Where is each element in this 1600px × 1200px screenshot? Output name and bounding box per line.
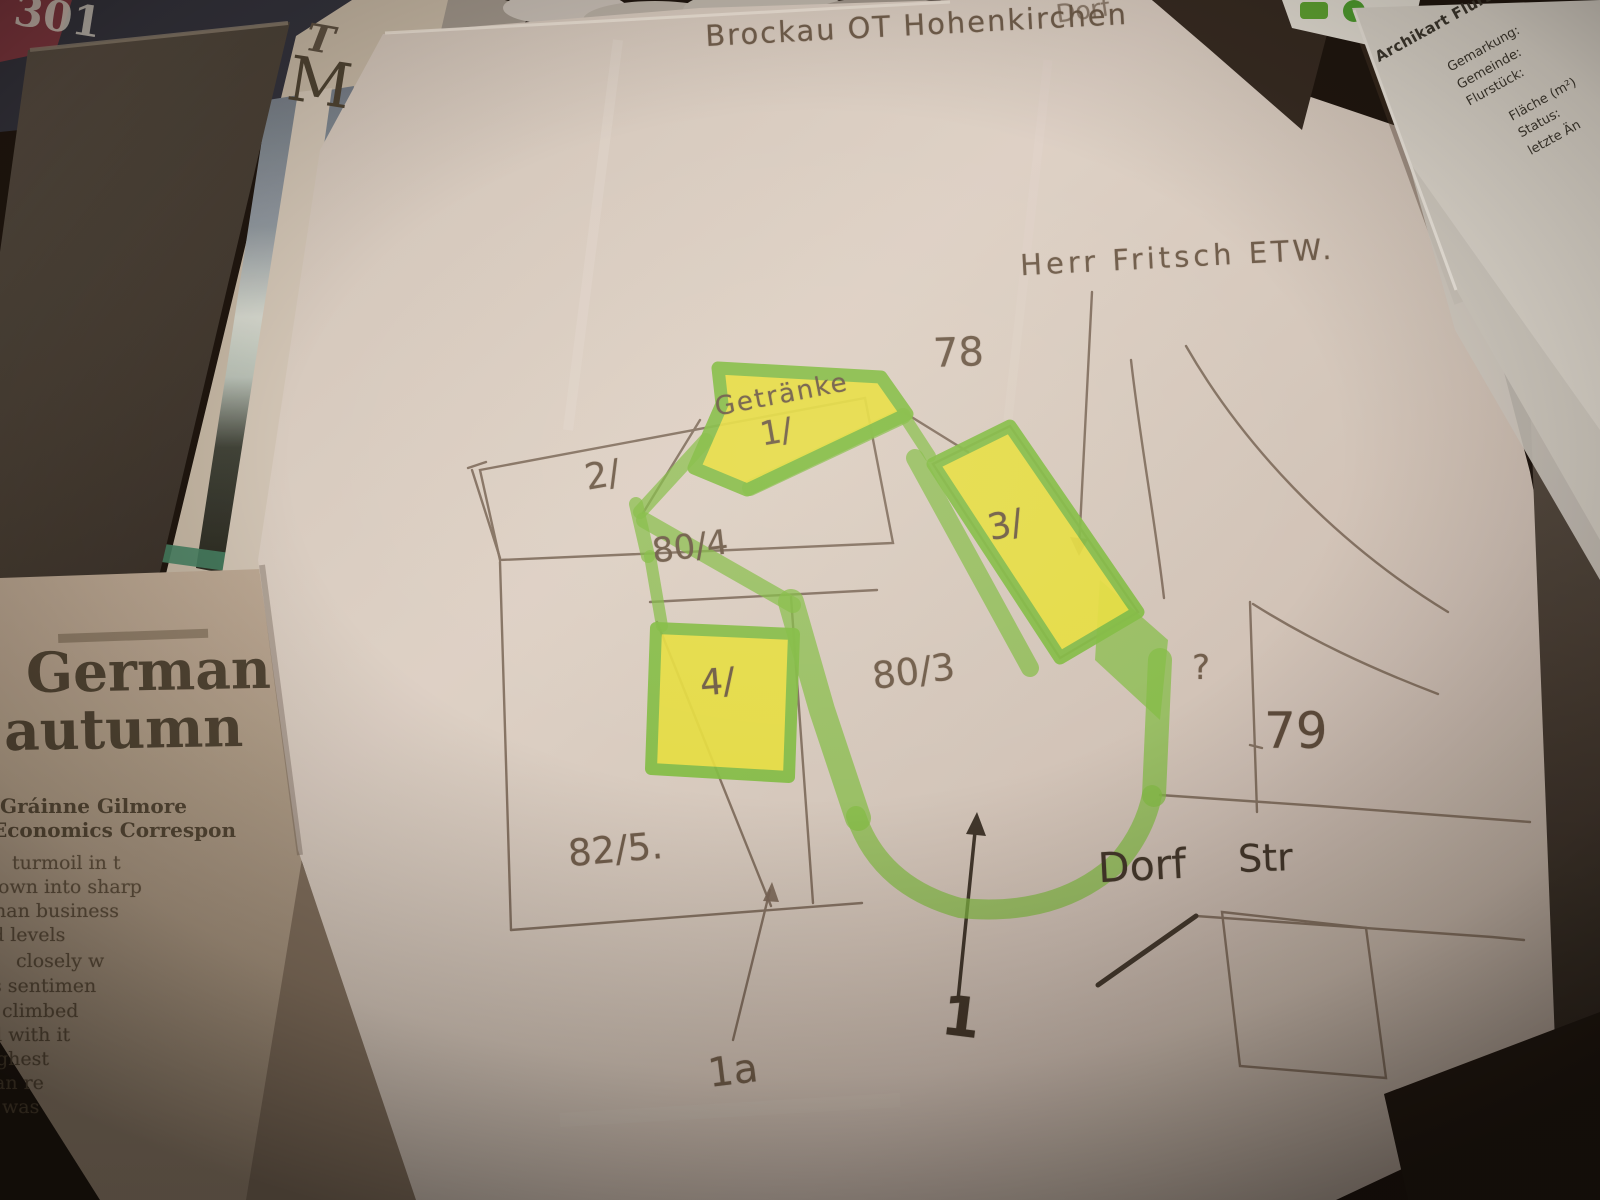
byline: Gráinne Gilmore — [0, 794, 187, 818]
newspaper-headline-initial: M — [283, 41, 357, 123]
body-line: was — [2, 1096, 39, 1118]
building-4-label: 4/ — [698, 661, 736, 705]
body-line: s sentimen — [0, 975, 96, 997]
callout-1: 1 — [938, 983, 984, 1051]
body-line: climbed — [2, 1000, 78, 1022]
body-line: own into sharp — [0, 876, 142, 898]
body-line: d with it — [0, 1024, 70, 1046]
scene-artwork — [0, 0, 1600, 1200]
headline-line-2: autumn — [3, 694, 243, 763]
logo-mark — [1300, 2, 1328, 19]
street-label-str: Str — [1237, 835, 1293, 881]
body-line: ghest — [0, 1048, 49, 1070]
parcel-label-78: 78 — [932, 329, 984, 377]
building-1-label: 1/ — [757, 410, 795, 454]
body-line: nan business — [0, 900, 119, 922]
street-label-dorf: Dorf — [1097, 840, 1187, 893]
parcel-label-2: 2/ — [582, 452, 624, 498]
byline-role: Economics Correspon — [0, 818, 236, 842]
parcel-label-82-5: 82/5. — [566, 824, 664, 875]
body-line: an re — [0, 1072, 44, 1094]
body-line: turmoil in t — [12, 852, 121, 874]
body-line: d levels — [0, 924, 65, 946]
body-line: closely w — [16, 950, 104, 972]
parcel-label-unknown: ? — [1192, 648, 1210, 688]
photographed-desk-scene: Brockau OT Hohenkirchen Dorf Herr Fritsc… — [0, 0, 1600, 1200]
parcel-label-79: 79 — [1264, 702, 1328, 760]
sketch-paper — [258, 0, 1586, 1200]
callout-1a: 1a — [705, 1045, 760, 1097]
